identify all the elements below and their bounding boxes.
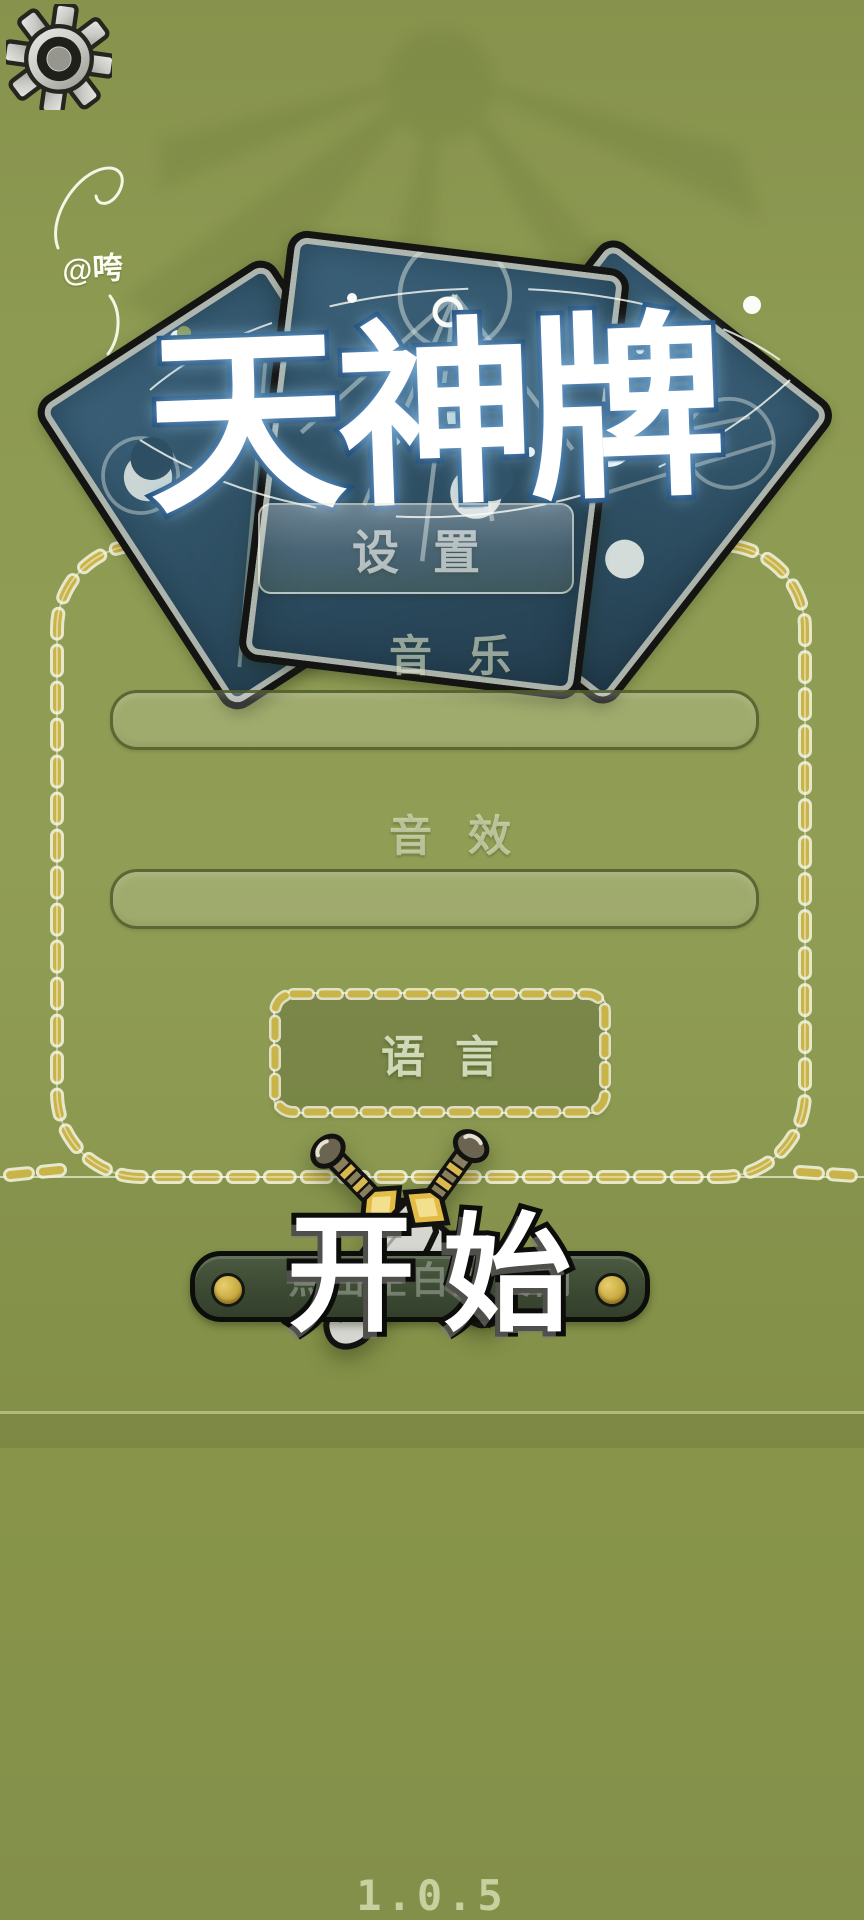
watermark-handle: @咵 (61, 239, 193, 291)
music-volume-slider[interactable] (110, 690, 759, 750)
game-screen: @咵 (0, 0, 864, 1920)
language-button[interactable]: 语言 (273, 992, 607, 1114)
language-button-label: 语言 (351, 1021, 529, 1085)
settings-title: 设置 (318, 514, 514, 583)
music-label: 音乐 (0, 622, 864, 684)
background-band-lower (0, 1414, 864, 1448)
settings-header: 设置 (258, 503, 574, 594)
gear-icon[interactable] (6, 4, 112, 110)
start-button-label[interactable]: 开始 (0, 1206, 858, 1347)
game-title: 天神牌 (0, 303, 864, 531)
version-text: 1.0.5 (0, 1871, 864, 1920)
sfx-label: 音效 (0, 802, 864, 864)
sfx-volume-slider[interactable] (110, 869, 759, 929)
